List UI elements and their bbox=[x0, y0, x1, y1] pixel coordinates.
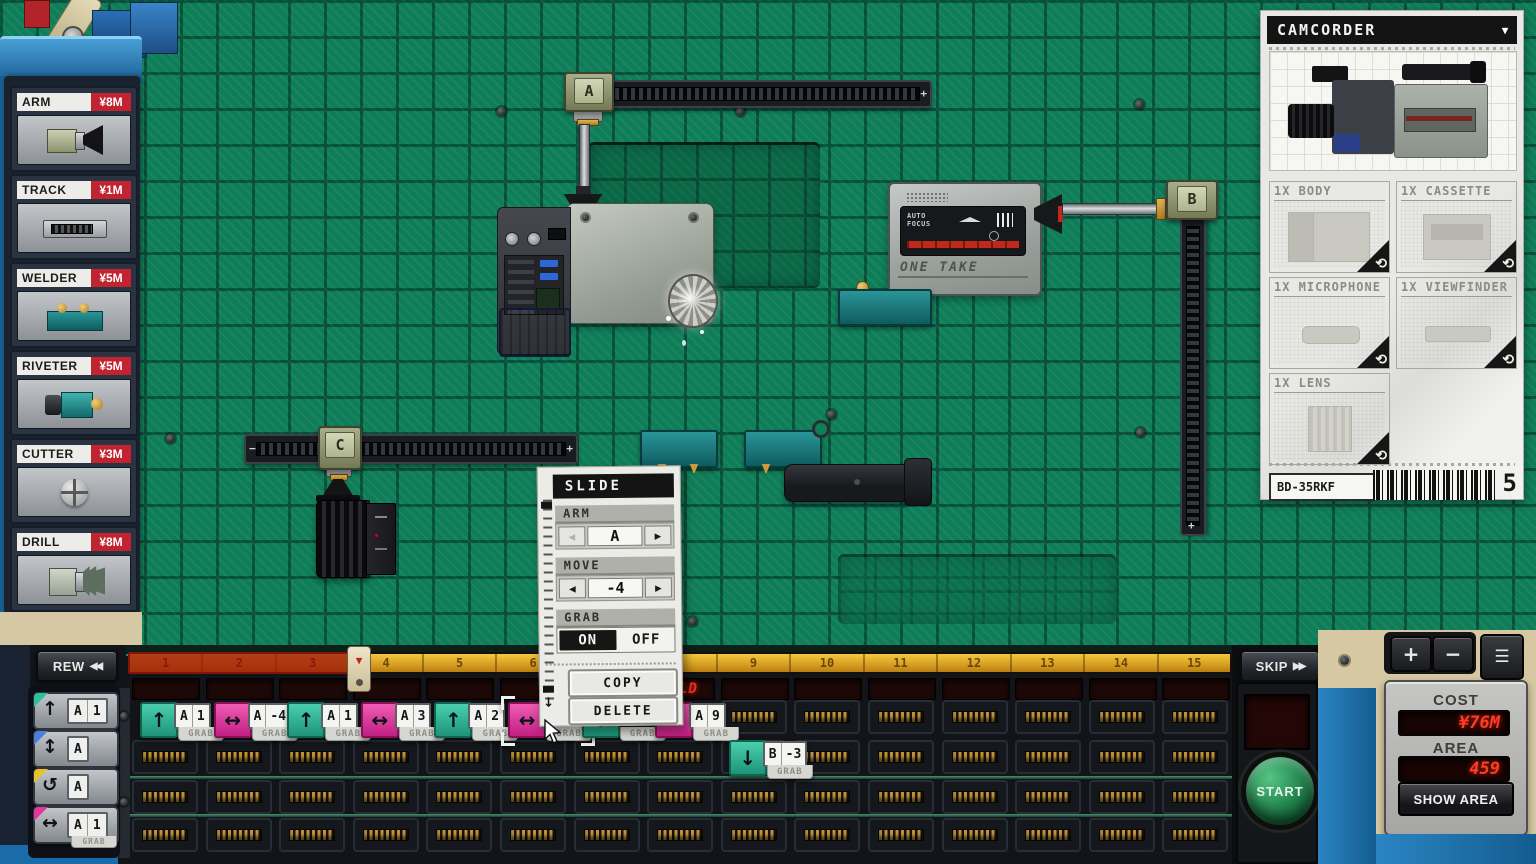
timeline-slot[interactable] bbox=[132, 780, 198, 814]
part-cell--x-lens[interactable]: 1X LENS⟲ bbox=[1269, 373, 1390, 465]
timeline-slot[interactable] bbox=[721, 818, 787, 852]
arm-prev-button[interactable]: ◀ bbox=[558, 526, 585, 546]
hero-lens bbox=[1288, 104, 1334, 138]
timeline-slot[interactable] bbox=[1162, 818, 1228, 852]
left-arrow-icon: ◀ bbox=[568, 530, 575, 543]
part-label: 1X BODY bbox=[1274, 184, 1385, 201]
part-label: 1X MICROPHONE bbox=[1274, 280, 1385, 297]
welder-machine-2[interactable] bbox=[640, 430, 718, 468]
board-screw bbox=[1136, 428, 1145, 437]
product-dropdown-button[interactable]: ▼ bbox=[1493, 16, 1517, 44]
start-button[interactable]: START bbox=[1241, 752, 1319, 830]
timeline-slot[interactable] bbox=[868, 700, 934, 734]
blue-column bbox=[1318, 688, 1376, 864]
arm-c-track[interactable]: − + bbox=[244, 434, 578, 464]
tool-card-riveter[interactable]: RIVETER¥5M bbox=[10, 350, 138, 436]
chip-label: A9 bbox=[689, 703, 726, 729]
chip-arm: A bbox=[397, 705, 414, 727]
command-chip[interactable]: ↓B-3GRAB bbox=[729, 740, 811, 780]
area-label: AREA bbox=[1386, 740, 1526, 757]
timeline-slot[interactable] bbox=[794, 700, 860, 734]
desk-screw bbox=[1340, 656, 1349, 665]
minus-icon: − bbox=[1445, 642, 1462, 666]
welder-machine-3[interactable] bbox=[744, 430, 822, 468]
grab-off-option[interactable]: OFF bbox=[618, 627, 675, 652]
circle-icon bbox=[989, 231, 999, 241]
timeline-slot[interactable] bbox=[353, 740, 419, 774]
chip-label: A1 bbox=[321, 703, 358, 729]
chip-arm: A bbox=[323, 705, 340, 727]
timeline-slot[interactable] bbox=[279, 818, 345, 852]
product-title-bar[interactable]: CAMCORDER bbox=[1267, 16, 1503, 44]
chip-grab-tab: GRAB bbox=[693, 727, 739, 741]
grab-toggle: ON OFF bbox=[556, 626, 675, 653]
tool-card-drill[interactable]: DRILL¥8M bbox=[10, 526, 138, 612]
board-screw bbox=[736, 107, 745, 116]
row-divider bbox=[128, 776, 1232, 779]
camcorder-image bbox=[1269, 51, 1517, 171]
arm-a-pole bbox=[579, 124, 590, 192]
timeline-slot[interactable] bbox=[1089, 700, 1155, 734]
tool-image-well bbox=[17, 115, 131, 165]
palette-grab-tab: GRAB bbox=[71, 836, 117, 848]
command-chip[interactable]: ↔A3GRAB bbox=[361, 702, 443, 742]
slide-arrow-icon: ↔ bbox=[214, 702, 252, 738]
ruler-number: 9 bbox=[750, 656, 757, 670]
arm-b-track[interactable]: + bbox=[1180, 216, 1206, 536]
ruler-tick-14: 14 bbox=[1083, 654, 1156, 672]
chevron-down-icon: ▼ bbox=[1502, 24, 1509, 37]
palette-updown-arrow-button[interactable]: ↕A bbox=[33, 730, 119, 768]
part-cell--x-cassette[interactable]: 1X CASSETTE⟲ bbox=[1396, 181, 1517, 273]
track-plus-label: + bbox=[566, 442, 573, 455]
perforation bbox=[1269, 47, 1515, 50]
tool-price-tag: ¥1M bbox=[91, 181, 131, 199]
ruler-tick-13: 13 bbox=[1010, 654, 1083, 672]
timeline-slot[interactable] bbox=[1015, 700, 1081, 734]
queue-count: 5 bbox=[1503, 469, 1517, 497]
timeline-slot[interactable] bbox=[1089, 780, 1155, 814]
grab-section-header: GRAB bbox=[556, 608, 675, 627]
timeline-slot[interactable] bbox=[574, 818, 640, 852]
timeline-slot[interactable] bbox=[353, 780, 419, 814]
ruler-tick-11: 11 bbox=[863, 654, 936, 672]
chip-value: 3 bbox=[414, 705, 430, 727]
arm-b-carriage[interactable]: B bbox=[1166, 180, 1218, 220]
led-cell bbox=[1015, 678, 1083, 700]
playhead-marker[interactable]: ▼ bbox=[347, 646, 371, 692]
drill-tool-icon bbox=[39, 563, 109, 597]
arm-b-label: B bbox=[1177, 186, 1207, 212]
desk-surface-left bbox=[0, 612, 142, 648]
product-panel: CAMCORDER ▼ BD-35RKF 5 1X BODY⟲1X CASSET… bbox=[1260, 10, 1524, 500]
show-area-button[interactable]: SHOW AREA bbox=[1398, 782, 1514, 816]
timeline-slot[interactable] bbox=[1162, 740, 1228, 774]
chip-arm: A bbox=[250, 705, 267, 727]
model-code-box: BD-35RKF bbox=[1269, 473, 1375, 501]
palette-value: 1 bbox=[88, 814, 106, 836]
right-arrow-icon: ▶ bbox=[654, 529, 661, 542]
part-label: 1X CASSETTE bbox=[1401, 184, 1512, 201]
cost-label: COST bbox=[1386, 692, 1526, 709]
kaizen-factory-screen: ARM¥8MTRACK¥1MWELDER¥5MRIVETER¥5MCUTTER¥… bbox=[0, 0, 1536, 864]
cost-display: ¥76M bbox=[1398, 710, 1510, 736]
timeline-slot[interactable] bbox=[206, 740, 272, 774]
level-bars-icon bbox=[997, 213, 1013, 227]
copy-button[interactable]: COPY bbox=[568, 668, 678, 697]
ruler-number: 10 bbox=[820, 656, 834, 670]
chip-value: -3 bbox=[782, 743, 806, 765]
led-cell bbox=[206, 678, 274, 700]
popup-title: SLIDE bbox=[565, 478, 622, 495]
board-screw bbox=[1135, 100, 1144, 109]
timeline-slot[interactable] bbox=[206, 818, 272, 852]
skip-button[interactable]: SKIP▶▶ bbox=[1240, 650, 1320, 682]
track-plus-label: + bbox=[920, 87, 927, 100]
timeline-slot[interactable] bbox=[426, 740, 492, 774]
timeline-slot[interactable] bbox=[1089, 740, 1155, 774]
palette-arm: A bbox=[69, 776, 87, 798]
red-stripe bbox=[907, 241, 1019, 248]
timeline-slot[interactable] bbox=[132, 740, 198, 774]
ruler-number: 12 bbox=[967, 656, 981, 670]
tool-image-well bbox=[17, 379, 131, 429]
timeline-slot[interactable] bbox=[647, 740, 713, 774]
palette-up-arrow-button[interactable]: ↑A1 bbox=[33, 692, 119, 730]
rotate-icon: ⟲ bbox=[1375, 256, 1387, 272]
microphone-part[interactable] bbox=[784, 464, 912, 502]
hero-mic bbox=[1402, 64, 1472, 80]
deck-screw bbox=[120, 712, 128, 720]
timeline-slot[interactable] bbox=[1162, 700, 1228, 734]
status-led-screen bbox=[1244, 694, 1310, 750]
chip-arm: B bbox=[765, 743, 782, 765]
camcorder-blue-button bbox=[540, 260, 558, 267]
chip-value: 1 bbox=[340, 705, 356, 727]
deck-left-edge bbox=[0, 645, 30, 864]
timeline-slot[interactable] bbox=[1162, 780, 1228, 814]
up-arrow-icon: ↑ bbox=[42, 698, 58, 720]
updown-arrow-icon: ↕ bbox=[42, 736, 58, 758]
timeline-slot[interactable] bbox=[206, 780, 272, 814]
row-divider bbox=[128, 814, 1232, 817]
recessed-area-2 bbox=[838, 554, 1116, 624]
product-title: CAMCORDER bbox=[1277, 21, 1376, 39]
zoom-in-button[interactable]: + bbox=[1390, 636, 1432, 672]
riveter-tool-icon bbox=[39, 387, 109, 421]
track-tool-icon bbox=[39, 211, 109, 245]
palette-arm: A bbox=[69, 700, 88, 722]
palette-arm: A bbox=[69, 738, 87, 760]
arm-next-button[interactable]: ▶ bbox=[644, 525, 671, 545]
tool-shop: ARM¥8MTRACK¥1MWELDER¥5MRIVETER¥5MCUTTER¥… bbox=[4, 76, 140, 614]
timeline-slot[interactable] bbox=[279, 740, 345, 774]
ruler-number: 5 bbox=[456, 656, 463, 670]
cassette-door-part[interactable]: AUTO FOCUS ONE TAKE bbox=[888, 182, 1042, 296]
welder-machine[interactable] bbox=[838, 289, 932, 326]
tool-price-tag: ¥3M bbox=[91, 445, 131, 463]
hero-mic-cap bbox=[1470, 61, 1486, 83]
led-cell bbox=[279, 678, 347, 700]
tool-card-cutter[interactable]: CUTTER¥3M bbox=[10, 438, 138, 524]
timeline-slot[interactable] bbox=[647, 780, 713, 814]
down-arrow-icon: ↓ bbox=[729, 740, 767, 776]
rew-label: REW bbox=[53, 659, 85, 674]
microphone-dot bbox=[854, 479, 860, 485]
welder-tool-icon bbox=[39, 299, 109, 333]
timeline-slot[interactable] bbox=[721, 780, 787, 814]
arm-stepper: ◀ A ▶ bbox=[555, 522, 674, 549]
spark-glow bbox=[676, 286, 704, 310]
ruler-tick-9: 9 bbox=[716, 654, 789, 672]
timeline-slot[interactable] bbox=[500, 818, 566, 852]
popup-title-bar[interactable]: SLIDE bbox=[553, 473, 674, 498]
track-minus-label: − bbox=[249, 442, 256, 455]
tool-price-tag: ¥8M bbox=[91, 533, 131, 551]
lens-part-barrel[interactable] bbox=[366, 503, 396, 575]
timeline-slot[interactable] bbox=[1015, 818, 1081, 852]
start-label: START bbox=[1256, 784, 1303, 799]
command-chip[interactable]: ↑A1GRAB bbox=[287, 702, 369, 742]
dispenser-red-block bbox=[24, 0, 50, 28]
ruler-number: 15 bbox=[1187, 656, 1201, 670]
ruler-tick-12: 12 bbox=[936, 654, 1009, 672]
led-cell bbox=[942, 678, 1010, 700]
tool-name: RIVETER bbox=[17, 357, 92, 375]
zoom-out-button[interactable]: − bbox=[1432, 636, 1474, 672]
move-value: -4 bbox=[588, 578, 643, 599]
timeline-slot[interactable] bbox=[426, 780, 492, 814]
tool-price-tag: ¥5M bbox=[91, 357, 131, 375]
command-palette: ↑A1↕A↺A↔A1GRAB bbox=[28, 686, 120, 858]
up-arrow-icon: ↑ bbox=[140, 702, 178, 738]
auto-focus-label-2: FOCUS bbox=[907, 220, 931, 228]
mouse-cursor bbox=[541, 719, 565, 745]
tool-image-well bbox=[17, 203, 131, 253]
chip-arm: A bbox=[691, 705, 708, 727]
part-cell--x-viewfinder[interactable]: 1X VIEWFINDER⟲ bbox=[1396, 277, 1517, 369]
tool-name: ARM bbox=[17, 93, 92, 111]
board-screw bbox=[688, 617, 697, 626]
area-value: 459 bbox=[1469, 759, 1500, 779]
move-stepper: ◀ -4 ▶ bbox=[556, 574, 675, 601]
skip-label: SKIP bbox=[1256, 659, 1288, 674]
palette-label: A bbox=[67, 736, 89, 762]
barcode bbox=[1373, 470, 1495, 500]
arm-a-label: A bbox=[574, 78, 604, 104]
tool-image-well bbox=[17, 555, 131, 605]
arm-value: A bbox=[587, 526, 642, 547]
part-label: 1X VIEWFINDER bbox=[1401, 280, 1512, 297]
chip-label: A-4 bbox=[248, 703, 292, 729]
palette-slide-arrow-button[interactable]: ↔A1GRAB bbox=[33, 806, 119, 844]
slide-command-popup: SLIDE ARM ◀ A ▶ MOVE ◀ -4 ▶ GRAB ON OFF … bbox=[537, 465, 684, 726]
board-screw bbox=[827, 410, 836, 419]
palette-label: A bbox=[67, 774, 89, 800]
move-section-header: MOVE bbox=[556, 556, 675, 575]
led-cell bbox=[794, 678, 862, 700]
tool-card-track[interactable]: TRACK¥1M bbox=[10, 174, 138, 260]
timeline-slot[interactable] bbox=[279, 780, 345, 814]
hero-red-line bbox=[1406, 116, 1472, 121]
slide-arrow-icon: ↔ bbox=[361, 702, 399, 738]
console-blue-base bbox=[1376, 834, 1536, 864]
led-cell bbox=[868, 678, 936, 700]
vent-grille bbox=[906, 192, 948, 202]
popup-separator bbox=[546, 662, 676, 665]
timeline-slot[interactable] bbox=[794, 780, 860, 814]
palette-label: A1 bbox=[67, 812, 108, 838]
board-screw bbox=[497, 107, 506, 116]
arm-a-carriage[interactable]: A bbox=[564, 72, 614, 112]
ruler-number: 11 bbox=[893, 656, 907, 670]
hero-blue-accent bbox=[1334, 134, 1360, 152]
timeline-slot[interactable] bbox=[132, 818, 198, 852]
timeline-slot[interactable] bbox=[574, 780, 640, 814]
chip-label: B-3 bbox=[763, 741, 807, 767]
cost-value: ¥76M bbox=[1459, 713, 1500, 733]
body-screw bbox=[582, 214, 589, 221]
selection-bracket bbox=[501, 696, 515, 710]
move-prev-button[interactable]: ◀ bbox=[559, 578, 586, 598]
led-cell bbox=[426, 678, 494, 700]
focus-icon bbox=[959, 217, 981, 222]
arm-a-track[interactable]: + bbox=[598, 80, 932, 108]
tool-name: CUTTER bbox=[17, 445, 92, 463]
led-cell bbox=[1162, 678, 1230, 700]
chip-label: A3 bbox=[395, 703, 432, 729]
timeline-slot[interactable] bbox=[868, 818, 934, 852]
arm-b-pole bbox=[1062, 203, 1166, 215]
popup-ruler-strip bbox=[541, 500, 556, 700]
command-chip[interactable]: ↑A1GRAB bbox=[140, 702, 222, 742]
ruler-tick-10: 10 bbox=[789, 654, 862, 672]
rotate-arrow-icon: ↺ bbox=[42, 774, 58, 796]
timeline-slot[interactable] bbox=[942, 818, 1008, 852]
ruler-tick-15: 15 bbox=[1157, 654, 1230, 672]
rotate-icon: ⟲ bbox=[1375, 448, 1387, 464]
ruler-number: 13 bbox=[1040, 656, 1054, 670]
timeline-slot[interactable] bbox=[1089, 818, 1155, 852]
led-cell bbox=[132, 678, 200, 700]
ruler-number: 4 bbox=[383, 656, 390, 670]
part-label: 1X LENS bbox=[1274, 376, 1385, 393]
palette-rotate-arrow-button[interactable]: ↺A bbox=[33, 768, 119, 806]
timeline-slot[interactable] bbox=[868, 740, 934, 774]
spark bbox=[700, 330, 704, 334]
up-arrow-icon: ↑ bbox=[434, 702, 472, 738]
delete-button[interactable]: DELETE bbox=[568, 696, 678, 725]
plus-icon: + bbox=[1403, 642, 1420, 666]
timeline-slot[interactable] bbox=[868, 780, 934, 814]
right-arrow-icon: ▶ bbox=[655, 581, 662, 594]
lens-red-dot bbox=[375, 534, 378, 537]
move-next-button[interactable]: ▶ bbox=[645, 577, 672, 597]
lens-marking bbox=[375, 548, 387, 550]
spark bbox=[666, 316, 671, 321]
auto-focus-label-1: AUTO bbox=[907, 212, 926, 220]
tool-name: DRILL bbox=[17, 533, 92, 551]
rotate-icon: ⟲ bbox=[1502, 352, 1514, 368]
microphone-cap-part[interactable] bbox=[904, 458, 932, 506]
camcorder-knob bbox=[505, 232, 519, 246]
timeline-slot[interactable] bbox=[794, 818, 860, 852]
tool-image-well bbox=[17, 291, 131, 341]
timeline-slot[interactable] bbox=[942, 740, 1008, 774]
timeline-slot[interactable] bbox=[942, 780, 1008, 814]
tool-card-arm[interactable]: ARM¥8M bbox=[10, 86, 138, 172]
chip-label: A2 bbox=[468, 703, 505, 729]
chip-grab-tab: GRAB bbox=[767, 765, 813, 779]
ruler-elapsed-overlay bbox=[128, 652, 357, 674]
rew-button[interactable]: REW◀◀ bbox=[36, 650, 118, 682]
ruler-tick-5: 5 bbox=[422, 654, 495, 672]
spark bbox=[682, 340, 686, 346]
timeline-slot[interactable] bbox=[500, 780, 566, 814]
chip-arm: A bbox=[176, 705, 193, 727]
menu-button[interactable]: ☰ bbox=[1480, 634, 1524, 680]
slide-arrow-icon: ↔ bbox=[42, 812, 58, 834]
selection-bracket bbox=[501, 732, 515, 746]
palette-label: A1 bbox=[67, 698, 108, 724]
chip-value: 1 bbox=[193, 705, 209, 727]
timeline-slot[interactable] bbox=[353, 818, 419, 852]
command-chip[interactable]: ↔A-4GRAB bbox=[214, 702, 296, 742]
tool-price-tag: ¥8M bbox=[91, 93, 131, 111]
chip-arm: A bbox=[470, 705, 487, 727]
timeline-slot[interactable] bbox=[942, 700, 1008, 734]
lens-marking bbox=[375, 516, 387, 518]
camcorder-mini-display bbox=[548, 228, 566, 240]
up-arrow-icon: ↑ bbox=[287, 702, 325, 738]
chip-label: A1 bbox=[174, 703, 211, 729]
track-plus-label: + bbox=[1188, 519, 1195, 532]
body-screw bbox=[690, 214, 697, 221]
part-cell--x-body[interactable]: 1X BODY⟲ bbox=[1269, 181, 1390, 273]
grab-on-option[interactable]: ON bbox=[559, 630, 616, 651]
part-cell--x-microphone[interactable]: 1X MICROPHONE⟲ bbox=[1269, 277, 1390, 369]
cassette-window: AUTO FOCUS bbox=[900, 206, 1026, 256]
left-arrow-icon: ◀ bbox=[569, 582, 576, 595]
palette-arm: A bbox=[69, 814, 88, 836]
model-code: BD-35RKF bbox=[1277, 480, 1335, 494]
timeline-slot[interactable] bbox=[1015, 740, 1081, 774]
board-screw bbox=[166, 434, 175, 443]
slot-marker-arrow-icon: ↓ bbox=[543, 696, 554, 711]
cutter-tool-icon bbox=[39, 475, 109, 509]
rew-icon: ◀◀ bbox=[90, 661, 101, 672]
one-take-brand: ONE TAKE bbox=[900, 260, 979, 275]
timeline-slot[interactable] bbox=[1015, 780, 1081, 814]
rotate-icon: ⟲ bbox=[1502, 256, 1514, 272]
show-area-label: SHOW AREA bbox=[1414, 792, 1499, 807]
deck-screw bbox=[120, 798, 128, 806]
arm-c-carriage[interactable]: C bbox=[318, 426, 362, 470]
tool-card-welder[interactable]: WELDER¥5M bbox=[10, 262, 138, 348]
led-cell bbox=[721, 678, 789, 700]
start-panel: START bbox=[1236, 682, 1318, 864]
timeline-slot[interactable] bbox=[426, 818, 492, 852]
playhead-triangle-icon: ▼ bbox=[356, 654, 363, 667]
lens-part-ribbed[interactable] bbox=[316, 500, 370, 578]
arm-c-label: C bbox=[325, 432, 355, 458]
peg-ring bbox=[812, 420, 830, 438]
arm-section-header: ARM bbox=[555, 504, 674, 523]
tool-name: WELDER bbox=[17, 269, 92, 287]
camcorder-green-panel bbox=[536, 288, 560, 310]
camcorder-battery-part[interactable] bbox=[499, 308, 571, 357]
timeline-slot[interactable] bbox=[647, 818, 713, 852]
